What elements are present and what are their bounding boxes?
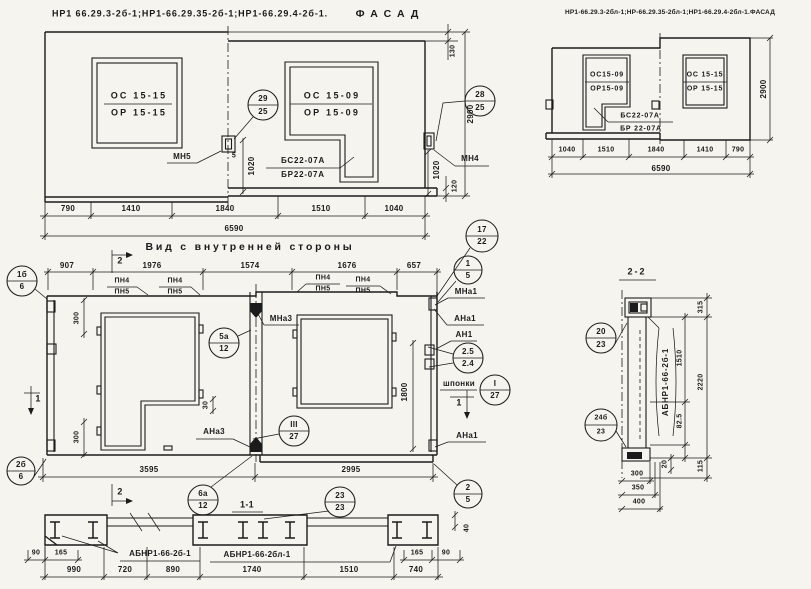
section-1-1-label-right: АБНР1-66-2бл-1 — [224, 551, 291, 559]
dim-label: 1840 — [216, 205, 235, 213]
anchor-an1-label: АН1 — [456, 331, 473, 339]
dim-label: 400 — [633, 499, 646, 506]
callout-iii27-bottom: 27 — [289, 433, 299, 441]
callout-23-23-top: 23 — [335, 492, 345, 500]
dim-label: 82.5 — [677, 414, 684, 429]
dim-label: 300 — [74, 312, 81, 325]
facade-left-callout-joint-top: 29 — [258, 95, 268, 103]
dim-label: 1020 — [433, 161, 441, 180]
dim-label: 1676 — [338, 262, 357, 270]
anchor-ana1-label: АНа1 — [454, 315, 476, 323]
callout-1b6-bottom: 6 — [20, 283, 25, 291]
callout-2-5-bottom: 5 — [466, 496, 471, 504]
facade-left-window2-mark-2: ОР 15-09 — [304, 109, 360, 118]
callout-23-23-bottom: 23 — [335, 504, 345, 512]
facade-left-callout-edge-top: 28 — [475, 91, 485, 99]
facade-left-sill-mark-2: БР22-07А — [281, 171, 325, 179]
facade-left-title-codes: НР1 66.29.3-2б-1;НР1-66.29.35-2б-1;НР1-6… — [52, 10, 328, 19]
section-2-mark-top: 2 — [117, 257, 122, 266]
dim-label: 890 — [166, 566, 180, 574]
facade-left-anchor-offset-dim: 5 — [232, 153, 236, 160]
dim-label: 165 — [411, 550, 424, 557]
dim-label: 300 — [631, 471, 644, 478]
pn-anchor-label: ПН4 — [356, 277, 371, 284]
callout-25-24-top: 2.5 — [462, 348, 474, 356]
section-2-2-linework — [585, 280, 712, 512]
dim-label: 907 — [60, 262, 74, 270]
section-2-2-title: 2-2 — [627, 268, 646, 277]
facade-left-linework — [40, 24, 495, 240]
facade-left-callout-joint-bottom: 25 — [258, 108, 268, 116]
pn-anchor-label: ПН5 — [115, 289, 130, 296]
facade-left-window1-mark-1: ОС 15-15 — [111, 92, 168, 101]
callout-1-5-bottom: 5 — [466, 272, 471, 280]
facade-right-title: НР1-66.29.3-2бл-1;НР-66.29.35-2бл-1;НР1-… — [565, 10, 775, 17]
section-2-2-element-label: АБНР1-66-2б-1 — [662, 348, 670, 416]
callout-1b6-top: 1б — [17, 271, 27, 279]
facade-left-sill-mark-1: БС22-07А — [281, 157, 325, 165]
callout-20-23-top: 20 — [596, 328, 606, 336]
dim-total-label: 6590 — [225, 225, 244, 233]
dim-total-label: 6590 — [652, 165, 671, 173]
dim-label: 1510 — [312, 205, 331, 213]
callout-5a12-top: 5а — [219, 333, 229, 341]
pn-anchor-label: ПН4 — [316, 275, 331, 282]
facade-right-linework — [546, 33, 773, 178]
callout-1-5-top: 1 — [466, 260, 471, 268]
section-1-1-label-left: АБНР1-66-2б-1 — [129, 550, 191, 558]
callout-6a12-bottom: 12 — [198, 502, 208, 510]
dim-label: 1040 — [385, 205, 404, 213]
callout-6a12-top: 6а — [198, 490, 208, 498]
dim-label: 40 — [464, 524, 471, 532]
dim-label: 1976 — [143, 262, 162, 270]
anchor-ana1b-label: АНа1 — [456, 432, 478, 440]
anchor-mna3-label: МНа3 — [270, 315, 293, 323]
dim-label: 115 — [698, 460, 705, 472]
facade-left-title-type: ФАСАД — [356, 9, 425, 20]
inner-view-title: Вид с внутренней стороны — [145, 242, 354, 253]
callout-25-24-bottom: 2.4 — [462, 360, 474, 368]
dim-label: 1574 — [241, 262, 260, 270]
callout-20-23-bottom: 23 — [596, 341, 606, 349]
dim-label: 790 — [732, 147, 745, 154]
facade-right-window1-mark-2: ОР15-09 — [590, 86, 624, 93]
facade-left-window2-mark-1: ОС 15-09 — [304, 92, 361, 101]
dim-label: 1800 — [401, 383, 409, 402]
callout-2-5-top: 2 — [466, 484, 471, 492]
dim-label: 1410 — [697, 147, 714, 154]
dim-label: 315 — [698, 301, 705, 314]
dim-label: 657 — [407, 262, 421, 270]
dim-label: 740 — [409, 566, 423, 574]
section-1-1-title: 1-1 — [240, 501, 254, 510]
pn-anchor-label: ПН4 — [168, 278, 183, 285]
dim-label: 2220 — [698, 374, 705, 391]
callout-24b-23-bottom: 23 — [597, 429, 605, 436]
facade-left-callout-edge-bottom: 25 — [475, 104, 485, 112]
dim-label: 990 — [67, 566, 81, 574]
facade-left-anchor-mn4-label: МН4 — [461, 155, 479, 163]
pn-anchor-label: ПН5 — [356, 288, 371, 295]
dim-label: 300 — [74, 431, 81, 444]
dim-height-label: 2900 — [760, 80, 768, 99]
dim-label: 30 — [203, 401, 210, 409]
callout-iii27-top: III — [290, 421, 298, 429]
dim-label: 120 — [452, 180, 459, 193]
section-1-mark-right: 1 — [456, 399, 461, 408]
dim-label: 20 — [662, 460, 669, 468]
shponki-label: шпонки — [443, 380, 475, 388]
facade-left-anchor-mn5-label: МН5 — [173, 153, 191, 161]
dim-label: 1020 — [248, 157, 256, 176]
callout-i27-bottom: 27 — [490, 392, 500, 400]
dim-label: 720 — [118, 566, 132, 574]
callout-2b6-top: 2б — [16, 461, 26, 469]
dim-label: 1040 — [559, 147, 576, 154]
dim-label: 1740 — [243, 566, 262, 574]
dim-label: 790 — [61, 205, 75, 213]
dim-label: 350 — [632, 485, 645, 492]
pn-anchor-label: ПН5 — [168, 289, 183, 296]
dim-label: 165 — [55, 550, 68, 557]
facade-right-window1-mark-1: ОС15-09 — [590, 72, 624, 79]
callout-2b6-bottom: 6 — [19, 473, 24, 481]
callout-24b-23-top: 24б — [594, 415, 607, 422]
dim-height-label: 2900 — [467, 105, 475, 124]
facade-left-window1-mark-2: ОР 15-15 — [111, 109, 167, 118]
dim-label: 3595 — [140, 466, 159, 474]
drawing-sheet: НР1 66.29.3-2б-1;НР1-66.29.35-2б-1;НР1-6… — [0, 0, 811, 589]
dim-label: 1510 — [598, 147, 615, 154]
facade-right-window2-mark-1: ОС 15-15 — [687, 72, 724, 79]
pn-anchor-label: ПН4 — [115, 278, 130, 285]
dim-label: 1410 — [122, 205, 141, 213]
dim-label: 1510 — [677, 350, 684, 367]
dim-label: 130 — [450, 45, 457, 58]
dim-label: 90 — [32, 550, 40, 557]
section-2-mark-bottom: 2 — [117, 488, 122, 497]
facade-right-window2-mark-2: ОР 15-15 — [687, 86, 723, 93]
anchor-mna1-label: МНа1 — [455, 288, 478, 296]
callout-5a12-bottom: 12 — [219, 345, 229, 353]
dim-label: 90 — [442, 550, 450, 557]
section-1-mark-left: 1 — [35, 395, 40, 404]
callout-i27-top: I — [494, 380, 497, 388]
dim-label: 1840 — [648, 147, 665, 154]
callout-17-22-bottom: 22 — [477, 238, 487, 246]
pn-anchor-label: ПН5 — [316, 286, 331, 293]
dim-label: 1510 — [340, 566, 359, 574]
callout-17-22-top: 17 — [477, 226, 487, 234]
facade-right-sill-mark-2: БР 22-07А — [620, 126, 662, 133]
facade-right-sill-mark-1: БС22-07А — [620, 113, 659, 120]
dim-label: 2995 — [342, 466, 361, 474]
anchor-ana3-label: АНа3 — [203, 428, 225, 436]
